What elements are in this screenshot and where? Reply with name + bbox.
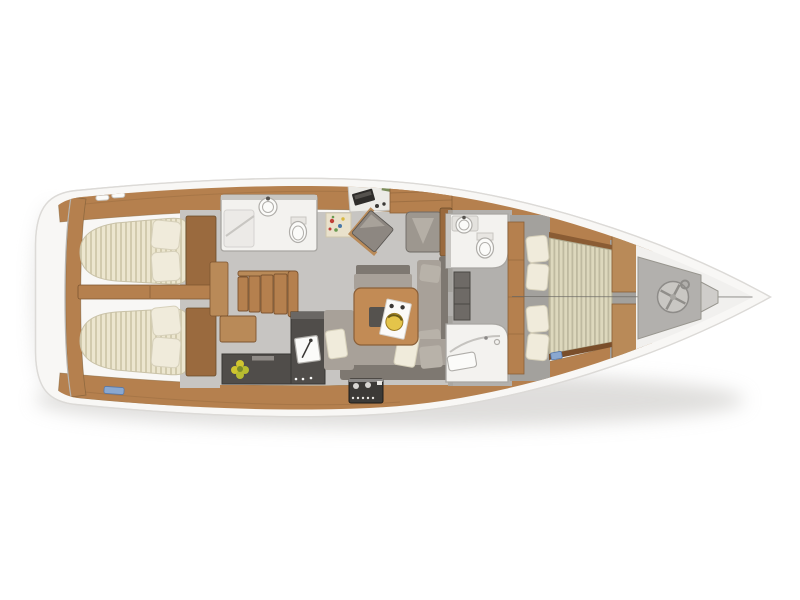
fore-lockers	[508, 222, 524, 374]
desk-item	[375, 204, 379, 208]
pillow	[526, 235, 550, 263]
companionway-post	[210, 262, 228, 316]
aft-cabin-port	[80, 216, 216, 286]
desk-item	[382, 202, 385, 205]
shower-tray	[224, 210, 254, 247]
pillow	[151, 337, 181, 368]
knob	[295, 378, 298, 381]
galley-sink	[294, 335, 320, 363]
forward-shower	[446, 324, 508, 382]
pillow	[526, 333, 550, 361]
galley-panel	[252, 356, 274, 361]
stair-landing	[220, 316, 256, 342]
stove-panel	[377, 381, 382, 385]
pillow	[526, 305, 549, 333]
side-seat	[406, 208, 452, 256]
sofa-cushion	[419, 345, 443, 369]
bulkhead-door-gap	[448, 292, 453, 316]
hull-window	[104, 386, 124, 394]
pillow	[151, 220, 182, 251]
cleat	[96, 195, 109, 201]
yacht-floor-plan-image	[0, 0, 800, 600]
burner	[365, 382, 371, 388]
basin	[456, 217, 472, 233]
knob	[310, 377, 313, 380]
faucet	[462, 216, 466, 220]
knob	[302, 378, 305, 381]
pillow	[325, 329, 348, 359]
floor-plan-svg	[0, 0, 800, 600]
galley-top-edge	[291, 312, 325, 319]
sofa-cushion	[419, 264, 441, 284]
pillow	[151, 251, 181, 282]
vberth-mattress	[549, 238, 612, 354]
aft-heads	[221, 195, 317, 251]
fwd-heads-wall	[446, 214, 451, 268]
basin	[259, 198, 277, 216]
burner	[353, 383, 359, 389]
drain	[484, 336, 488, 340]
aft-headboard-starboard	[186, 308, 216, 376]
pillow	[526, 263, 549, 291]
wardrobe	[454, 272, 470, 320]
rug	[326, 213, 351, 237]
stove	[349, 379, 383, 403]
saloon-table	[354, 288, 418, 345]
hull-window	[550, 351, 562, 360]
pillow	[151, 306, 182, 337]
forward-heads	[446, 214, 508, 268]
faucet	[266, 197, 270, 201]
aft-cabin-starboard	[80, 306, 216, 376]
